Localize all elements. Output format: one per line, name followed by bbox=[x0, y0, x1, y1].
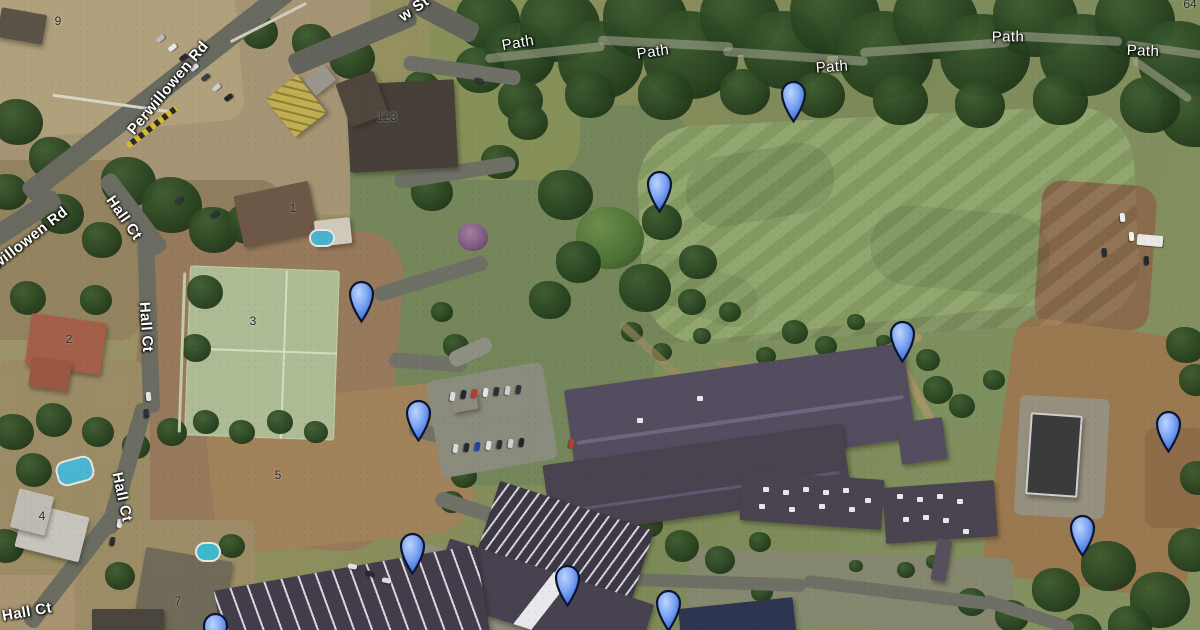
tree bbox=[849, 560, 863, 573]
building-roof bbox=[882, 480, 998, 544]
pin-icon bbox=[399, 532, 426, 576]
tree bbox=[897, 562, 915, 579]
car bbox=[482, 387, 488, 397]
road-label: Hall Ct bbox=[136, 301, 156, 352]
tree bbox=[82, 222, 122, 259]
roof-vent bbox=[823, 490, 829, 495]
tree bbox=[529, 281, 571, 320]
tree bbox=[916, 349, 940, 371]
pin-icon bbox=[1155, 410, 1182, 454]
roof-vent bbox=[923, 515, 929, 520]
car bbox=[485, 440, 491, 450]
sports-field-line bbox=[189, 347, 337, 354]
car bbox=[473, 77, 483, 83]
building-roof bbox=[739, 470, 884, 530]
house-number-label: 3 bbox=[250, 314, 257, 328]
roof-vent bbox=[789, 507, 795, 512]
roof-vent bbox=[819, 504, 825, 509]
tree bbox=[80, 285, 112, 314]
car bbox=[474, 441, 480, 451]
tree bbox=[36, 403, 72, 436]
roof-vent bbox=[763, 487, 769, 492]
house-number-label: 9 bbox=[55, 14, 62, 28]
tree bbox=[782, 320, 808, 344]
tree bbox=[983, 370, 1005, 390]
car bbox=[568, 438, 574, 448]
tree bbox=[219, 534, 245, 558]
tree bbox=[193, 410, 219, 434]
pin-icon bbox=[348, 280, 375, 324]
roof-vent bbox=[917, 497, 923, 502]
roof-vent bbox=[849, 507, 855, 512]
car bbox=[364, 570, 374, 577]
pin-icon bbox=[780, 80, 807, 124]
swimming-pool bbox=[195, 542, 221, 562]
car bbox=[381, 577, 391, 584]
house-number-label: 1 bbox=[290, 201, 297, 215]
car bbox=[347, 563, 357, 570]
roof-vent bbox=[937, 494, 943, 499]
tree bbox=[638, 70, 693, 121]
roof-vent bbox=[903, 517, 909, 522]
roof-vent bbox=[759, 504, 765, 509]
car bbox=[515, 384, 521, 394]
car bbox=[1101, 247, 1107, 256]
map-pin[interactable] bbox=[399, 532, 426, 576]
car bbox=[518, 437, 524, 447]
car bbox=[493, 386, 499, 396]
path-label: Path bbox=[1126, 42, 1159, 60]
car bbox=[504, 385, 510, 395]
pin-icon bbox=[646, 170, 673, 214]
car bbox=[463, 442, 469, 452]
swimming-pool bbox=[309, 229, 335, 247]
pin-icon bbox=[405, 399, 432, 443]
tree bbox=[1032, 568, 1080, 612]
pin-icon bbox=[655, 589, 682, 630]
roof-vent bbox=[803, 487, 809, 492]
roof-vent bbox=[697, 396, 703, 401]
satellite-map: Perwillowen Rdwillowen Rdw StHall CtHall… bbox=[0, 0, 1200, 630]
tree bbox=[720, 69, 770, 115]
tree bbox=[749, 532, 771, 552]
map-pin[interactable] bbox=[1155, 410, 1182, 454]
roof-vent bbox=[897, 494, 903, 499]
tree bbox=[665, 530, 699, 561]
car bbox=[109, 536, 115, 546]
pin-icon bbox=[889, 320, 916, 364]
tree bbox=[955, 82, 1005, 128]
building-roof bbox=[28, 356, 72, 391]
tree bbox=[949, 394, 975, 418]
tree bbox=[538, 170, 593, 221]
car bbox=[1143, 255, 1149, 264]
path-label: Path bbox=[992, 29, 1024, 46]
tree bbox=[873, 75, 928, 126]
tree bbox=[304, 421, 328, 443]
car bbox=[460, 389, 466, 399]
tree bbox=[1033, 75, 1088, 126]
tree bbox=[678, 289, 706, 315]
pin-icon bbox=[1069, 514, 1096, 558]
tree bbox=[181, 334, 211, 362]
tree bbox=[679, 245, 717, 280]
roof-vent bbox=[783, 490, 789, 495]
car bbox=[471, 388, 477, 398]
road-segment bbox=[425, 361, 558, 478]
pin-icon bbox=[202, 612, 229, 630]
tree bbox=[431, 302, 453, 322]
roof-vent bbox=[943, 518, 949, 523]
tree bbox=[847, 314, 865, 331]
tree bbox=[229, 420, 255, 444]
tree bbox=[157, 418, 187, 446]
tree bbox=[619, 264, 671, 312]
building-roof bbox=[896, 417, 947, 465]
tree bbox=[105, 562, 135, 590]
roof-vent bbox=[637, 418, 643, 423]
roof-vent bbox=[865, 498, 871, 503]
roof-vent bbox=[957, 499, 963, 504]
tree bbox=[719, 302, 741, 322]
tree bbox=[187, 275, 223, 308]
house-number-label: 123 bbox=[377, 110, 397, 124]
car bbox=[507, 438, 513, 448]
house-number-label: 4 bbox=[39, 509, 46, 523]
map-pin[interactable] bbox=[348, 280, 375, 324]
tree bbox=[10, 281, 46, 314]
path-label: Path bbox=[815, 57, 849, 76]
tree bbox=[923, 376, 953, 404]
roof-vent bbox=[843, 488, 849, 493]
pin-icon bbox=[554, 564, 581, 608]
car bbox=[143, 408, 149, 417]
tree bbox=[1166, 327, 1200, 364]
car bbox=[496, 439, 502, 449]
map-pin[interactable] bbox=[405, 399, 432, 443]
tree bbox=[82, 417, 114, 446]
map-pin[interactable] bbox=[655, 589, 682, 630]
house-number-label: 64 bbox=[1183, 0, 1196, 11]
roof-vent bbox=[963, 529, 969, 534]
car bbox=[452, 443, 458, 453]
house-number-label: 2 bbox=[66, 332, 73, 346]
tree bbox=[693, 328, 711, 345]
tree bbox=[508, 104, 548, 141]
building-roof bbox=[92, 609, 164, 630]
map-pin[interactable] bbox=[889, 320, 916, 364]
field-mow-stripes bbox=[634, 103, 1142, 347]
car bbox=[1137, 233, 1164, 246]
map-pin[interactable] bbox=[554, 564, 581, 608]
map-pin[interactable] bbox=[1069, 514, 1096, 558]
house-number-label: 5 bbox=[275, 468, 282, 482]
building-roof bbox=[1025, 412, 1083, 497]
car bbox=[1119, 212, 1125, 221]
tree bbox=[16, 453, 52, 486]
tree bbox=[705, 546, 735, 574]
map-pin[interactable] bbox=[202, 612, 229, 630]
car bbox=[1128, 231, 1134, 240]
house-number-label: 7 bbox=[175, 594, 182, 608]
map-pin[interactable] bbox=[646, 170, 673, 214]
tree bbox=[565, 72, 615, 118]
tree bbox=[267, 410, 293, 434]
tree bbox=[458, 223, 488, 251]
car bbox=[145, 391, 151, 400]
tree bbox=[556, 241, 601, 282]
car bbox=[449, 391, 455, 401]
map-pin[interactable] bbox=[780, 80, 807, 124]
